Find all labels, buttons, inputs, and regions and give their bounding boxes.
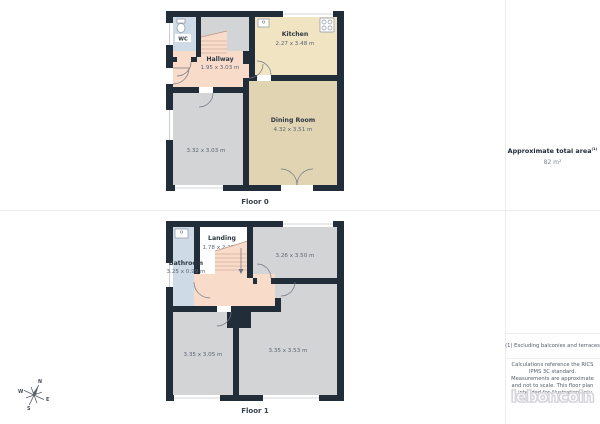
wc-label: WC — [178, 37, 188, 43]
bathroom-label: Bathroom — [169, 260, 203, 267]
hallway-dims: 1.95 x 3.03 m — [200, 65, 239, 71]
floor1-caption: Floor 1 — [165, 407, 345, 415]
room4-dims: 3.35 x 3.53 m — [268, 348, 307, 354]
total-area-block: Approximate total area(1) 82 m² — [505, 147, 600, 166]
room1-dims: 3.32 x 3.03 m — [186, 148, 225, 154]
floor0-caption: Floor 0 — [165, 198, 345, 206]
kitchen-sink-icon — [258, 19, 269, 27]
landing-label: Landing — [208, 235, 236, 242]
total-area-title: Approximate total area(1) — [505, 147, 600, 155]
floorplan-page: WC Hallway 1.95 x 3.03 m Kitchen 2.27 x … — [0, 0, 600, 424]
compass-n: N — [38, 379, 42, 385]
room2-dims: 3.26 x 3.50 m — [275, 253, 314, 259]
bathroom-sink-icon — [175, 229, 188, 238]
total-area-title-text: Approximate total area — [508, 147, 592, 155]
total-area-value: 82 m² — [505, 159, 600, 166]
hallway-label: Hallway — [206, 56, 233, 63]
footnote: (1) Excluding balconies and terraces — [505, 343, 600, 349]
compass-w: W — [18, 389, 24, 395]
hall-cross — [194, 274, 275, 306]
panel-divider-bottom — [505, 358, 600, 359]
total-area-superscript: (1) — [592, 147, 598, 151]
kitchen-label: Kitchen — [282, 31, 309, 38]
dining-room — [249, 81, 337, 185]
section-divider — [0, 210, 600, 211]
leboncoin-watermark: leboncoin — [505, 387, 600, 406]
dining-label: Dining Room — [271, 117, 316, 124]
compass-e: E — [46, 397, 49, 403]
kitchen-dims: 2.27 x 3.48 m — [275, 41, 314, 47]
compass-s: S — [27, 406, 31, 412]
compass-rose-icon: N W E S — [11, 372, 57, 418]
stove-icon — [320, 18, 334, 32]
toilet-icon — [177, 19, 185, 33]
dining-dims: 4.32 x 3.51 m — [273, 127, 312, 133]
panel-divider — [505, 0, 506, 424]
floor1-plan: Landing 1.78 x 2.25 m — [165, 218, 345, 408]
panel-divider-top — [505, 333, 600, 334]
room3-dims: 3.35 x 3.05 m — [183, 352, 222, 358]
bathroom-dims: 3.25 x 0.99 m — [166, 269, 205, 275]
room1-room — [173, 93, 243, 185]
floor0-plan: WC Hallway 1.95 x 3.03 m Kitchen 2.27 x … — [165, 8, 345, 198]
